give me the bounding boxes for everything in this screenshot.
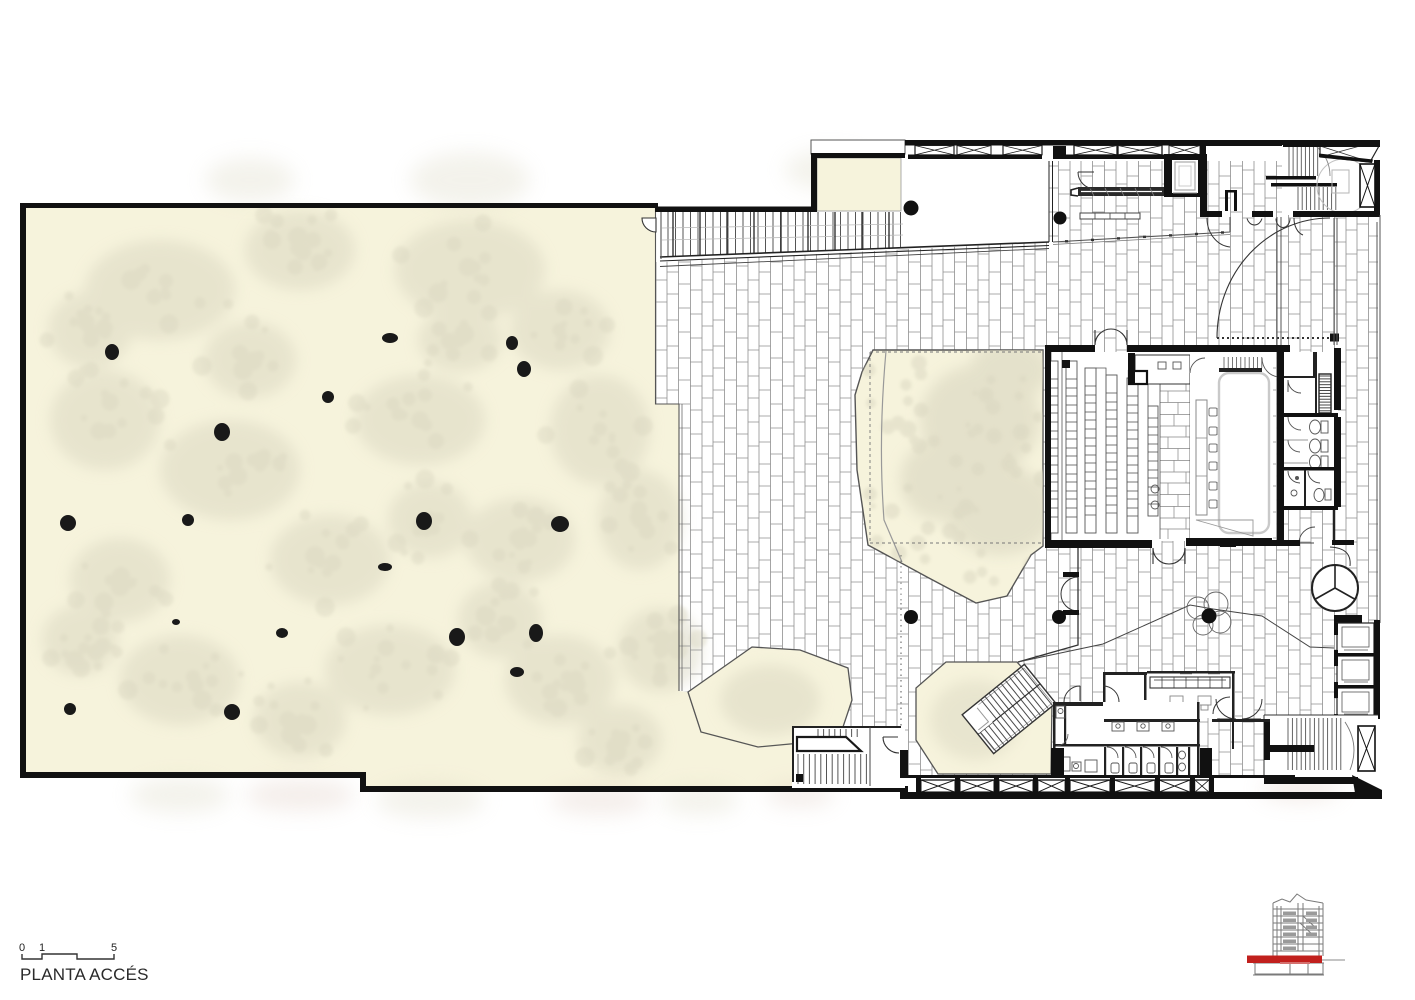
svg-text:5: 5 — [111, 942, 117, 954]
svg-text:0: 0 — [19, 942, 25, 954]
svg-text:PLANTA ACCÉS: PLANTA ACCÉS — [20, 965, 149, 984]
svg-text:1: 1 — [39, 942, 45, 954]
